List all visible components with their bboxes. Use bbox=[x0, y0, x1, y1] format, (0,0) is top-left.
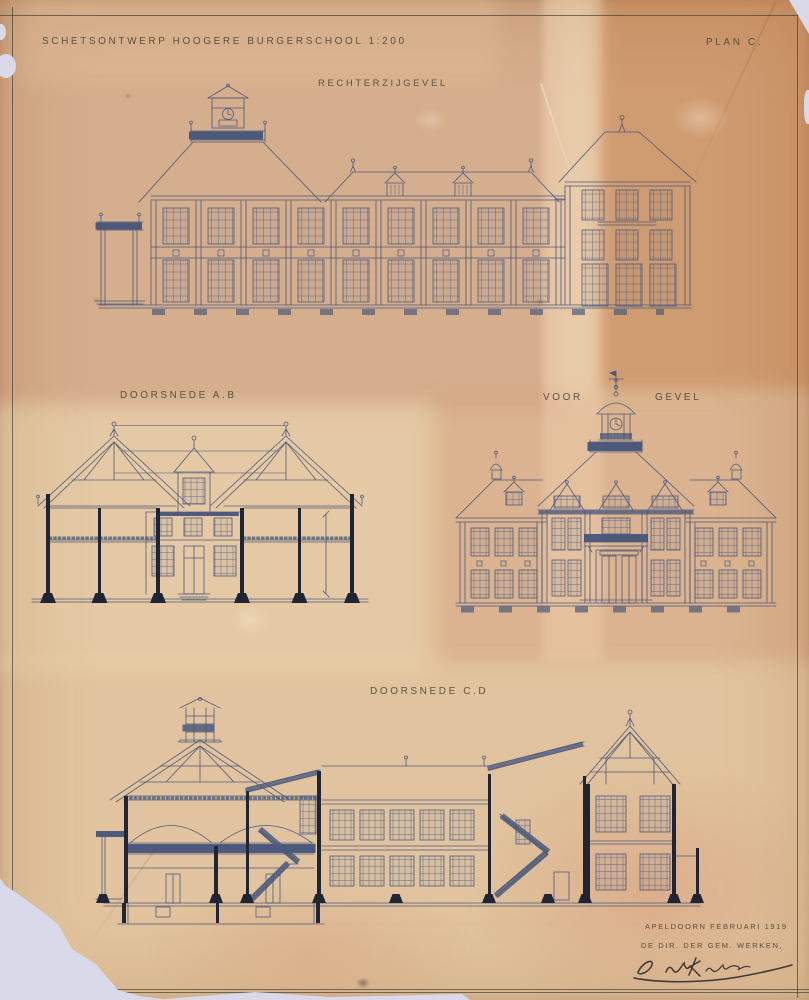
frame-line-right bbox=[797, 6, 798, 998]
plan-label: PLAN C. bbox=[706, 37, 763, 48]
right-dormer bbox=[708, 476, 728, 505]
cut-walls bbox=[46, 494, 354, 594]
left-corner-turret bbox=[490, 451, 502, 479]
left-roof-truss bbox=[37, 422, 190, 508]
right-bay-interior bbox=[244, 508, 350, 597]
sheet-title: SCHETSONTWERP HOOGERE BURGERSCHOOL 1:200 bbox=[42, 36, 407, 47]
frame-line-bottom-inner bbox=[0, 992, 809, 993]
right-wing bbox=[686, 451, 776, 603]
aged-paper-sheet: SCHETSONTWERP HOOGERE BURGERSCHOOL 1:200… bbox=[0, 0, 809, 1000]
frame-line-top bbox=[0, 15, 805, 16]
right-elevation-drawing bbox=[95, 84, 695, 320]
entrance-porch bbox=[580, 537, 652, 604]
center-tower bbox=[174, 436, 214, 512]
ground-line bbox=[32, 599, 368, 602]
left-dormer bbox=[504, 476, 524, 505]
blueprint-scan: SCHETSONTWERP HOOGERE BURGERSCHOOL 1:200… bbox=[0, 0, 809, 1000]
left-bay-interior bbox=[50, 508, 156, 542]
right-corner-turret bbox=[730, 451, 742, 479]
right-roof-truss bbox=[210, 422, 363, 508]
center-facade bbox=[146, 512, 242, 600]
ground-line bbox=[104, 903, 700, 906]
lantern-tower bbox=[178, 698, 222, 743]
section-cd-drawing bbox=[96, 696, 708, 936]
paper-nick-right bbox=[804, 90, 809, 124]
hall-roof-truss bbox=[110, 740, 290, 802]
gablets bbox=[550, 481, 682, 510]
hall-section bbox=[124, 796, 318, 903]
footings bbox=[40, 593, 360, 603]
main-facade bbox=[151, 196, 565, 305]
left-wing bbox=[456, 451, 546, 603]
paper-nick-left bbox=[0, 24, 6, 40]
section-ab-drawing bbox=[26, 416, 374, 618]
right-pavilion bbox=[555, 116, 696, 307]
label-section-ab: DOORSNEDE A.B bbox=[120, 390, 237, 401]
clock-tower bbox=[208, 84, 248, 128]
paper-hole-left bbox=[0, 54, 16, 78]
left-staircase bbox=[246, 770, 320, 899]
paper-crease-top-right bbox=[682, 2, 777, 202]
left-pavilion-roof bbox=[139, 121, 321, 202]
right-block-section bbox=[580, 710, 698, 890]
footings bbox=[96, 894, 704, 903]
left-porch bbox=[96, 832, 126, 903]
frame-line-left bbox=[12, 7, 13, 997]
front-elevation-drawing bbox=[450, 370, 782, 618]
central-roof bbox=[325, 159, 559, 202]
far-left-porch bbox=[95, 213, 145, 305]
signature bbox=[630, 948, 802, 986]
ground-line bbox=[456, 603, 776, 610]
corridor-elevation bbox=[322, 756, 488, 886]
right-staircase bbox=[488, 742, 584, 900]
frame-line-bottom-outer bbox=[0, 989, 809, 990]
clock-cupola bbox=[597, 371, 635, 440]
